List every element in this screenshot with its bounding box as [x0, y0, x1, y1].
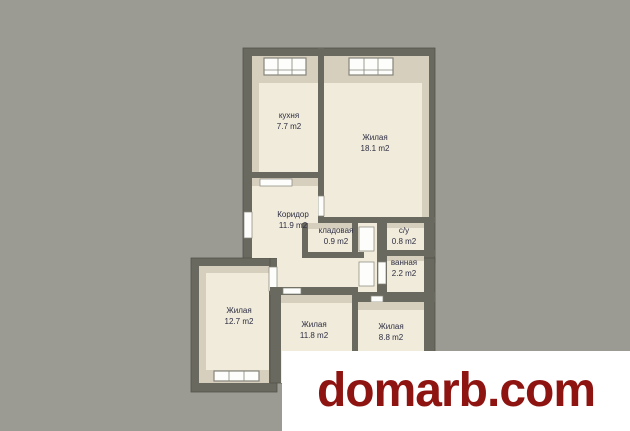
door-living-3: [283, 288, 301, 294]
living-2-floor: [199, 266, 269, 370]
door-strip-upper: [359, 227, 374, 251]
room-storage: [302, 223, 364, 258]
floor-plan-image: кухня 7.7 m2 Жилая 18.1 m2 Коридор 11.9 …: [0, 0, 630, 431]
storage-wall-band: [308, 223, 352, 229]
watermark: domarb.com: [282, 351, 630, 431]
corridor-floor-mid: [252, 223, 302, 258]
bathroom-floor: [387, 256, 424, 292]
wall-storage-bottom: [302, 252, 364, 258]
living-4-wall-band: [358, 302, 424, 310]
door-bathroom: [378, 262, 386, 284]
watermark-text: domarb.com: [317, 367, 595, 415]
wall-kitchen-corridor: [252, 172, 318, 178]
bathroom-wall-band: [387, 256, 424, 261]
living-3-wall-band: [281, 295, 352, 303]
wall-wc-bottom: [387, 250, 435, 256]
wc-wall-band: [387, 223, 424, 228]
door-kitchen: [260, 179, 292, 186]
door-living-4: [371, 296, 383, 302]
room-kitchen: [252, 56, 318, 172]
wall-storage-right: [352, 223, 358, 252]
wall-living-1-bottom: [324, 217, 435, 223]
door-living-1: [318, 196, 324, 216]
room-living-2: [199, 266, 277, 383]
wall-living-4-top: [358, 295, 435, 302]
room-living-1: [324, 56, 429, 217]
living-1-window: [349, 58, 393, 75]
living-2-window: [214, 371, 259, 381]
door-strip-lower: [359, 262, 374, 286]
kitchen-window: [264, 58, 306, 75]
entrance-door: [244, 212, 252, 238]
